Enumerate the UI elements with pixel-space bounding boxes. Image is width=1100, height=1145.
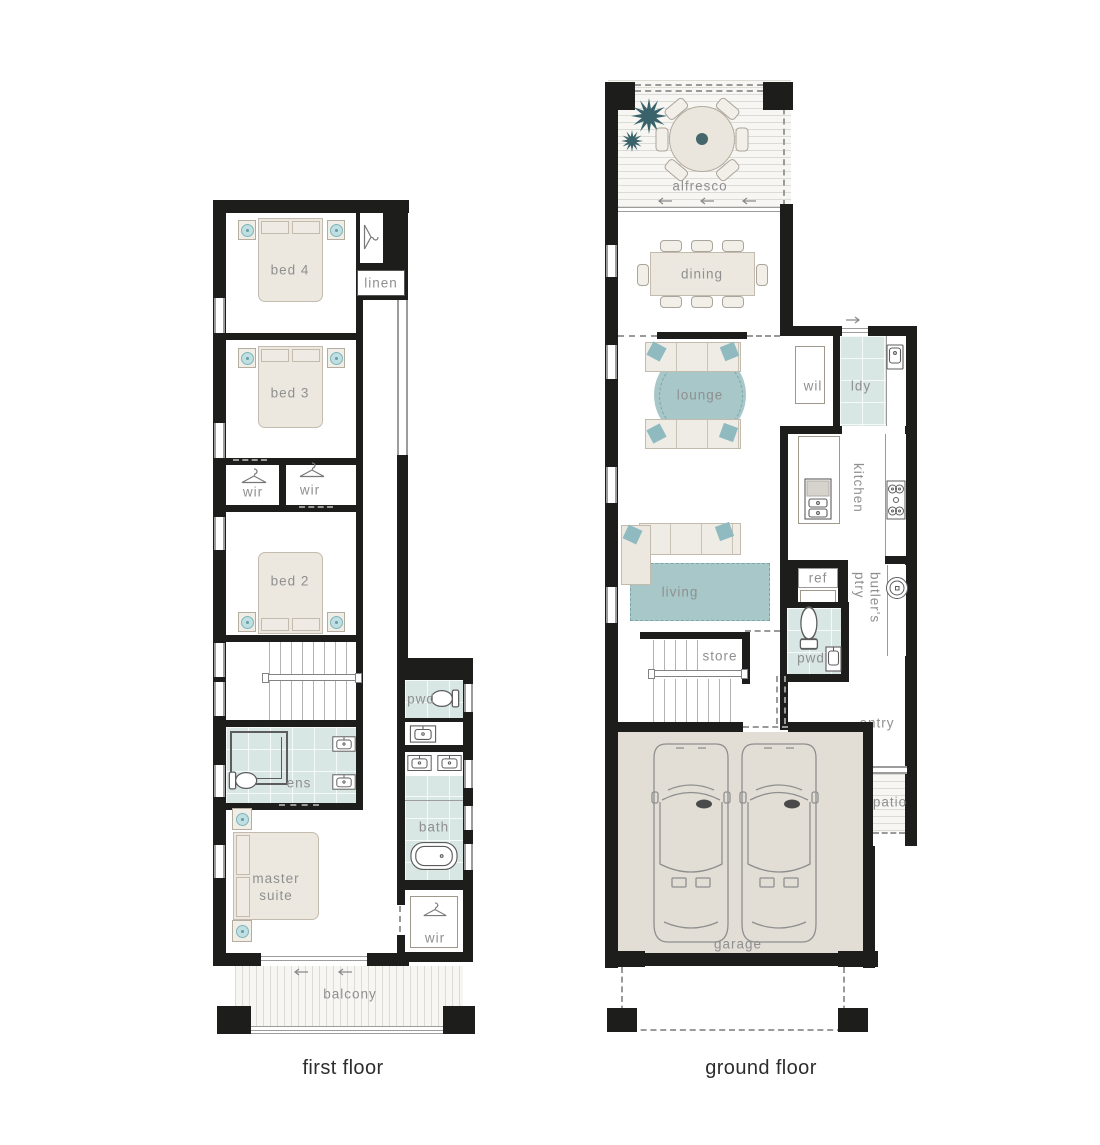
bedside-table (327, 612, 345, 632)
basin-icon (825, 646, 842, 672)
post (605, 951, 645, 967)
chair (656, 128, 669, 152)
balcony-rail-line (235, 1033, 463, 1034)
corridor-window (397, 300, 408, 455)
garage-door-opening (743, 726, 788, 728)
round-sink-icon (885, 576, 909, 600)
chair (637, 264, 649, 286)
wall (397, 455, 408, 672)
island-sink-icon (804, 478, 832, 520)
wall (788, 722, 863, 732)
chair (660, 296, 682, 308)
ldy-label: ldy (851, 379, 871, 394)
window (214, 765, 225, 797)
pillow (236, 835, 250, 875)
balcony-door-track (261, 960, 367, 961)
pwd-label: pwd (797, 651, 825, 666)
ldy-window (842, 328, 868, 329)
staircase (653, 679, 741, 722)
window (214, 423, 225, 458)
first-floor-caption: first floor (213, 1057, 473, 1080)
post (607, 1008, 637, 1032)
post (838, 1008, 868, 1032)
bedside-table (327, 220, 345, 240)
door-track (618, 207, 780, 208)
lounge-label: lounge (677, 388, 724, 403)
balcony-rail-line (235, 1030, 463, 1031)
wir-label: wir (425, 931, 445, 946)
robe-closet (360, 213, 383, 263)
wall (367, 953, 409, 966)
slide-arrow-right-icon (845, 316, 861, 324)
wall (833, 336, 840, 426)
ground-floor-plan: alfresco (605, 78, 917, 1043)
ref-label: ref (809, 571, 828, 586)
wall (397, 935, 405, 952)
lamp-icon (330, 224, 343, 237)
staircase (653, 640, 699, 670)
toilet-icon (227, 770, 259, 791)
wil-label: wil (804, 379, 823, 394)
door-opening (399, 906, 401, 932)
wall (213, 953, 261, 966)
driveway-edge (621, 1029, 843, 1031)
vanity-sink-icon (407, 754, 432, 772)
balcony-door-track (261, 956, 367, 957)
alfresco-post (763, 82, 793, 110)
bath-label: bath (419, 820, 449, 835)
toilet-icon (798, 612, 820, 644)
staircase (269, 642, 355, 720)
patio-label: patio (873, 795, 907, 810)
wall (618, 953, 863, 966)
wall (226, 333, 356, 340)
slide-arrow-left-icon (293, 968, 309, 976)
wall (788, 560, 798, 604)
wall (838, 560, 848, 604)
wall (618, 722, 743, 732)
pillow (292, 349, 320, 362)
window (214, 682, 225, 716)
chair (756, 264, 768, 286)
door-opening (299, 506, 333, 508)
slide-arrow-left-icon (741, 197, 757, 205)
wall (226, 720, 356, 727)
wall (640, 632, 750, 639)
window (214, 643, 225, 677)
floor-plan-canvas: linen bed 4 bed 3 wir wir (0, 0, 1100, 1145)
car-icon (740, 738, 818, 948)
slide-arrow-left-icon (657, 197, 673, 205)
bedside-table (232, 808, 252, 830)
hanger-icon (239, 468, 269, 484)
pillow (261, 618, 289, 631)
door-opening (233, 459, 267, 461)
window (606, 245, 617, 277)
ldy-window (842, 332, 868, 333)
wall (356, 642, 363, 810)
balcony-post (217, 1006, 251, 1034)
stair-handrail (265, 674, 359, 681)
window (464, 806, 473, 830)
kitchen-label: kitchen (850, 463, 866, 533)
pwd-label: pwd (407, 692, 435, 707)
wir-label: wir (300, 483, 320, 498)
wall (226, 635, 356, 642)
chair (736, 128, 749, 152)
living-rug (630, 563, 770, 621)
butlers-label: butler's ptry (851, 572, 882, 652)
chair (691, 240, 713, 252)
car-icon (652, 738, 730, 948)
first-floor-plan: linen bed 4 bed 3 wir wir (213, 200, 473, 1060)
opening-line (618, 335, 657, 337)
dining-label: dining (681, 267, 723, 282)
wall (226, 505, 356, 512)
door-opening (279, 804, 319, 806)
opening-line (776, 676, 778, 724)
window (464, 760, 473, 788)
slide-arrow-left-icon (337, 968, 353, 976)
window (606, 345, 617, 379)
wall (841, 602, 849, 680)
lamp-icon (330, 352, 343, 365)
bed2-label: bed 2 (271, 574, 310, 589)
vanity-sink-icon (409, 725, 437, 743)
entry-step (868, 766, 907, 774)
window (464, 844, 473, 870)
cooktop-icon (886, 480, 906, 520)
chair (660, 240, 682, 252)
window (606, 587, 617, 623)
chair (722, 296, 744, 308)
opening-line (745, 630, 780, 632)
lamp-icon (241, 352, 254, 365)
vanity-sink-icon (437, 754, 462, 772)
balcony-label: balcony (323, 987, 377, 1002)
pillow (292, 221, 320, 234)
vanity-sink-icon (332, 734, 356, 754)
ground-floor-caption: ground floor (605, 1057, 917, 1080)
alfresco-table-center (696, 133, 708, 145)
lamp-icon (330, 616, 343, 629)
opening-line (747, 335, 780, 337)
opening-line (784, 676, 786, 724)
chair (722, 240, 744, 252)
window (214, 845, 225, 878)
wall (405, 745, 463, 752)
window (214, 298, 225, 333)
laundry-sink-icon (886, 344, 904, 370)
lamp-icon (241, 616, 254, 629)
wall (780, 426, 842, 434)
wil-shelf-outline (795, 346, 825, 404)
chair (691, 296, 713, 308)
window (464, 684, 473, 712)
wall (397, 658, 473, 680)
lamp-icon (241, 224, 254, 237)
bedside-table (327, 348, 345, 368)
balcony-post (443, 1006, 475, 1034)
wall (356, 300, 363, 642)
pillow (261, 349, 289, 362)
pillow (261, 221, 289, 234)
plant-icon (621, 130, 643, 152)
bed3-label: bed 3 (271, 386, 310, 401)
door-track (618, 211, 780, 212)
wall (863, 722, 873, 846)
hanger-icon (421, 902, 449, 917)
wall (780, 602, 787, 680)
balcony-rail-line (235, 1026, 463, 1027)
lamp-icon (236, 925, 249, 938)
alfresco-label: alfresco (672, 179, 727, 194)
window (214, 517, 225, 550)
wall (780, 434, 788, 602)
post (838, 951, 878, 967)
master-suite-label: master suite (239, 871, 313, 905)
window (606, 467, 617, 503)
garage-label: garage (714, 937, 762, 952)
bedside-table (232, 920, 252, 942)
bath-divider-line (405, 800, 463, 801)
wall (397, 680, 405, 905)
wall (279, 458, 286, 512)
alfresco-roofline (635, 90, 763, 92)
wall (605, 108, 618, 968)
bedside-table (238, 348, 256, 368)
bed4-label: bed 4 (271, 263, 310, 278)
lamp-icon (236, 813, 249, 826)
wall (885, 556, 917, 564)
stair-handrail (651, 670, 745, 677)
patio-edge (873, 832, 905, 834)
alfresco-roofline (635, 84, 763, 86)
wall (780, 326, 842, 336)
wall (397, 880, 473, 890)
bedside-table (238, 612, 256, 632)
bedside-table (238, 220, 256, 240)
slide-arrow-left-icon (699, 197, 715, 205)
wall (863, 846, 875, 968)
wall (787, 674, 849, 682)
hanger-icon (297, 462, 327, 478)
pillow (292, 618, 320, 631)
linen-label: linen (364, 276, 398, 291)
wall (780, 210, 793, 336)
hanger-icon (363, 222, 379, 252)
ens-label: ens (287, 776, 312, 791)
store-label: store (702, 649, 737, 664)
wir-label: wir (243, 485, 263, 500)
bathtub-icon (410, 841, 458, 871)
vanity-sink-icon (332, 772, 356, 792)
wall (657, 332, 747, 339)
living-label: living (662, 585, 699, 600)
